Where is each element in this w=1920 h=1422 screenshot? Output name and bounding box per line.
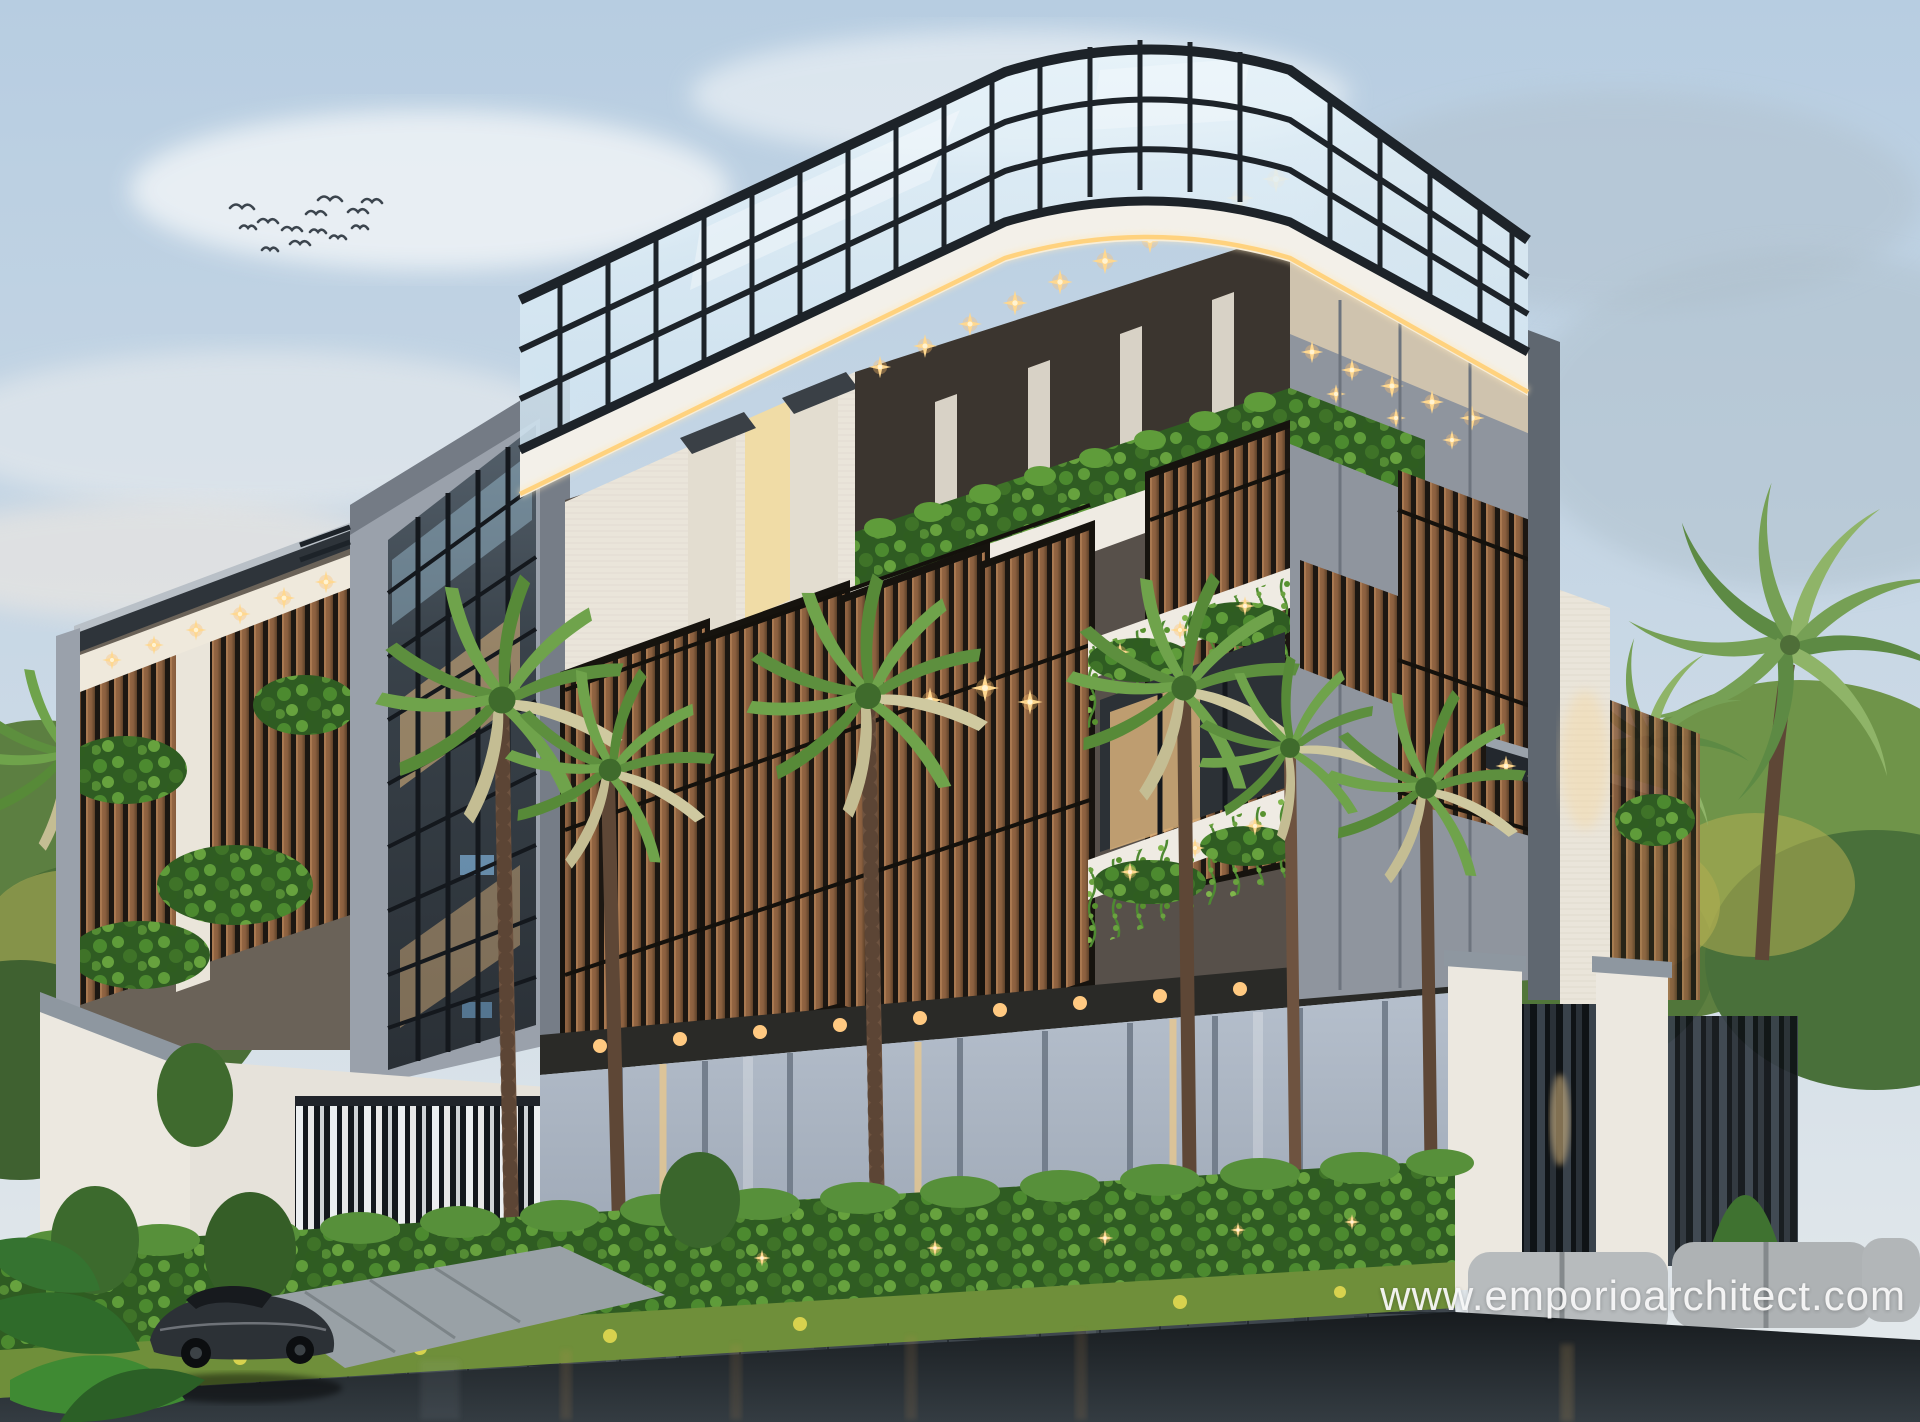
wheel-rim xyxy=(295,1345,306,1356)
render-canvas xyxy=(0,0,1920,1422)
wall-greenery xyxy=(70,921,210,989)
corner-column-dark xyxy=(1528,330,1560,1000)
wall-greenery xyxy=(157,845,313,925)
shrub xyxy=(660,1152,740,1248)
left-corner-trim xyxy=(56,628,80,1050)
palm-trunk xyxy=(1184,700,1190,1215)
palm-trunk-rings xyxy=(868,708,878,1240)
wood-screen xyxy=(985,530,1090,1014)
gate-pillar xyxy=(1448,960,1522,1290)
palm-trunk xyxy=(1290,760,1296,1222)
wall-greenery xyxy=(63,736,187,804)
uplight-wash xyxy=(1561,690,1609,830)
gate-uplight xyxy=(1550,1074,1570,1166)
shrub xyxy=(157,1043,233,1147)
wood-screen xyxy=(705,590,845,1038)
gate-pillar xyxy=(1596,966,1668,1290)
side-wood-wall xyxy=(1610,700,1700,1000)
wall-greenery xyxy=(253,675,357,735)
side-greenery xyxy=(1615,794,1695,846)
lit-wall-slot xyxy=(745,400,790,620)
wheel-rim xyxy=(190,1347,202,1359)
watermark: www.emporioarchitect.com xyxy=(1380,1272,1906,1320)
architectural-render: www.emporioarchitect.com xyxy=(0,0,1920,1422)
gate-rail xyxy=(295,1096,560,1106)
